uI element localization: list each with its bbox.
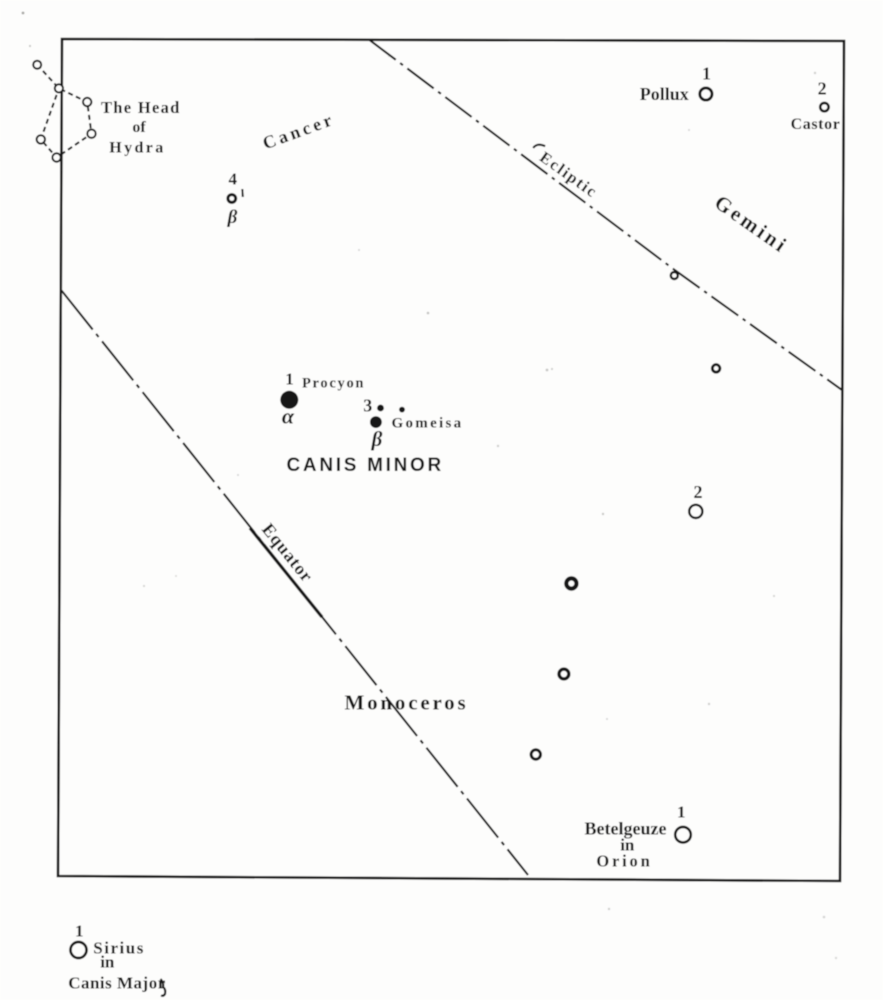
svg-text:in: in: [100, 952, 115, 971]
svg-text:of: of: [132, 119, 146, 136]
svg-text:Monoceros: Monoceros: [345, 691, 469, 715]
svg-text:1: 1: [75, 921, 84, 940]
svg-text:1: 1: [285, 370, 294, 389]
svg-text:The Head: The Head: [101, 98, 181, 117]
svg-text:3: 3: [363, 396, 372, 416]
svg-text:CANIS MINOR: CANIS MINOR: [287, 455, 444, 476]
svg-text:Gomeisa: Gomeisa: [392, 416, 464, 432]
svg-text:β: β: [371, 427, 383, 451]
svg-text:Pollux: Pollux: [640, 84, 689, 104]
svg-text:Orion: Orion: [596, 852, 652, 871]
svg-text:2: 2: [694, 482, 703, 502]
svg-text:Canis Major: Canis Major: [68, 974, 166, 993]
svg-text:1: 1: [677, 803, 686, 822]
svg-text:Hydra: Hydra: [109, 140, 165, 157]
svg-text:α: α: [282, 403, 295, 428]
svg-text:Castor: Castor: [791, 116, 841, 133]
svg-text:4: 4: [228, 170, 237, 189]
svg-text:Procyon: Procyon: [302, 376, 365, 392]
svg-text:2: 2: [818, 79, 827, 99]
svg-text:β: β: [227, 207, 238, 228]
svg-text:1: 1: [702, 63, 711, 83]
